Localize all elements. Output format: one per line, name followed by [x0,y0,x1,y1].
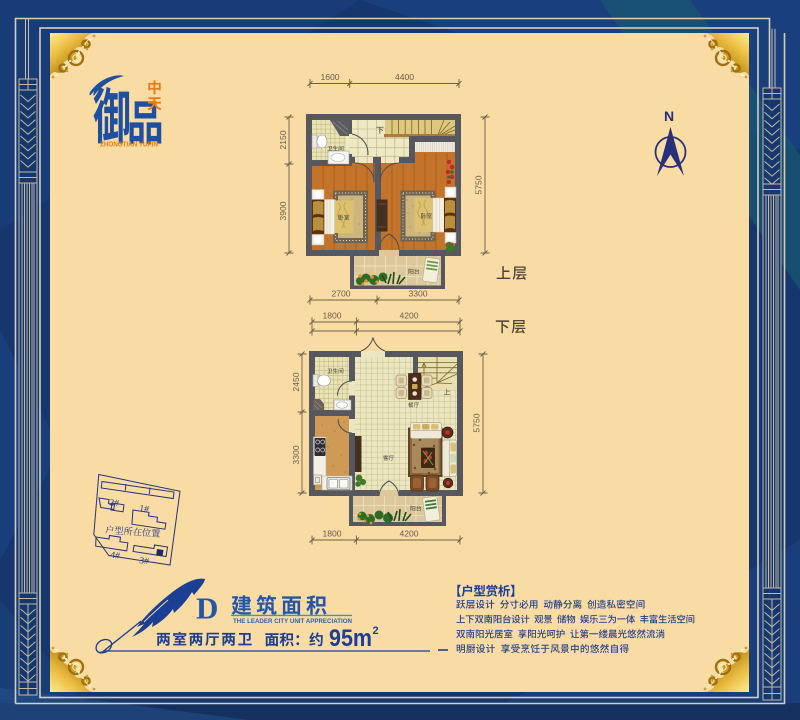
svg-text:95m: 95m [329,625,372,652]
svg-text:1800: 1800 [322,311,341,321]
svg-text:4200: 4200 [399,311,418,321]
svg-text:1600: 1600 [320,72,339,82]
svg-text:THE LEADER CITY UNIT APPRECIAT: THE LEADER CITY UNIT APPRECIATION [233,618,352,625]
svg-text:2450: 2450 [291,372,301,391]
svg-text:5750: 5750 [472,413,482,432]
svg-text:2#: 2# [109,498,120,509]
svg-text:1800: 1800 [322,529,341,539]
svg-text:N: N [664,108,674,124]
svg-text:3#: 3# [139,556,150,567]
svg-text:ZHONGTIAN YUPIN: ZHONGTIAN YUPIN [100,140,158,149]
svg-text:3900: 3900 [278,201,288,220]
svg-text:4200: 4200 [399,529,418,539]
svg-text:3300: 3300 [291,445,301,464]
svg-text:5750: 5750 [474,175,484,194]
svg-text:4400: 4400 [395,72,414,82]
svg-text:3300: 3300 [408,289,427,299]
svg-text:4#: 4# [110,551,121,562]
svg-text:1#: 1# [139,504,150,515]
svg-text:D: D [196,591,218,626]
svg-text:2150: 2150 [278,130,288,149]
svg-text:2700: 2700 [331,289,350,299]
svg-text:2: 2 [373,625,379,637]
